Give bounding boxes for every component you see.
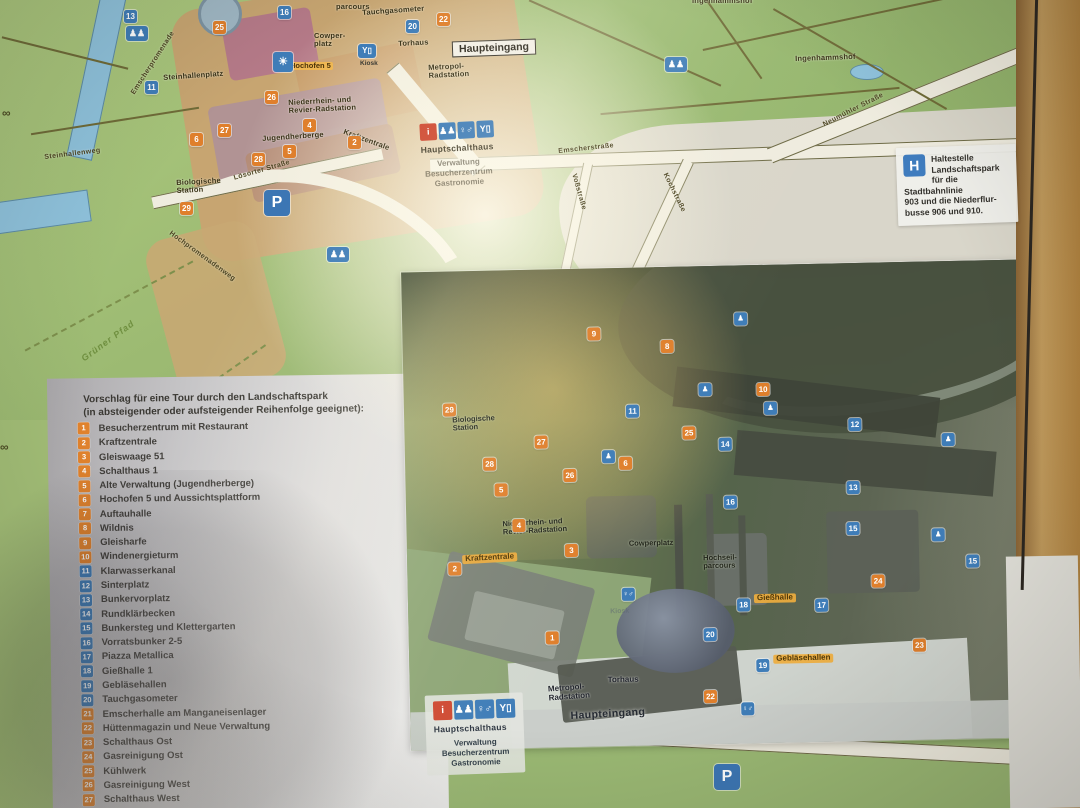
inset-badge-5: 5 (495, 483, 508, 496)
map-label: Kochstraße (661, 172, 686, 214)
inset-badge-1: 1 (546, 631, 559, 644)
inset-badge-13: 13 (847, 481, 860, 494)
inset-badge-11: 11 (626, 405, 639, 418)
inset-badge-16: 16 (724, 496, 737, 509)
figures-icon: ♟ (764, 402, 777, 415)
map-label: Ingenhammshof (795, 53, 856, 63)
map-badge-11: 11 (145, 81, 158, 94)
figures-icon: ♟ (734, 312, 747, 325)
transit-info-box: H HaltestelleLandschaftsparkfür die Stad… (896, 144, 1019, 226)
inset-badge-17: 17 (815, 599, 828, 612)
map-badge-22: 22 (437, 13, 450, 26)
inset-badge-23: 23 (913, 639, 926, 652)
parking-icon: P (714, 764, 740, 790)
bicycle-icon: ∞ (2, 106, 11, 120)
parking-icon: P (264, 190, 290, 216)
main-entrance-label: Haupteingang (452, 39, 537, 58)
inset-badge-19: 19 (756, 659, 769, 672)
viewpoint-icon: ☀ (273, 52, 293, 72)
visitor-facilities-inset: i ♟♟ ♀♂ Y▯ Hauptschalthaus Verwaltung Be… (425, 692, 526, 775)
map-badge-5: 5 (283, 145, 296, 158)
playground-icon: ♟♟ (126, 26, 148, 41)
inset-badge-14: 14 (719, 438, 732, 451)
family-icon: ♟♟ (454, 700, 474, 720)
map-label: Steinhallenplatz (163, 70, 224, 82)
bicycle-icon: ∞ (0, 440, 9, 454)
map-badge-28: 28 (252, 153, 265, 166)
inset-label: Cowperplatz (629, 539, 674, 548)
playground-icon: ♟♟ (327, 247, 349, 262)
family-icon: ♟♟ (438, 122, 456, 140)
inset-badge-27: 27 (535, 435, 548, 448)
wc-icon: ♀♂ (457, 121, 475, 139)
inset-label: Metropol- Radstation (548, 682, 590, 702)
facility-icons: i ♟♟ ♀♂ Y▯ (419, 120, 494, 141)
map-badge-25: 25 (213, 21, 226, 34)
map-label: Grüner Pfad (80, 319, 137, 364)
inset-badge-25: 25 (682, 426, 695, 439)
map-label: Niederrhein- und Revier-Radstation (288, 95, 356, 115)
inset-label: Hochseil- parcours (703, 554, 737, 571)
inset-badge-15: 15 (846, 522, 859, 535)
map-badge-16: 16 (278, 6, 291, 19)
info-icon: i (419, 123, 437, 141)
figures-icon: ♟ (942, 433, 955, 446)
map-label: Jugendherberge (262, 131, 324, 143)
inset-badge-28: 28 (483, 458, 496, 471)
playground-icon: ♟♟ (665, 57, 687, 72)
facility-title: Hauptschalthaus (434, 722, 516, 735)
map-badge-26: 26 (265, 91, 278, 104)
facility-title: Hauptschalthaus (420, 141, 494, 155)
map-label: Emscherstraße (558, 142, 614, 155)
inset-badge-15: 15 (966, 554, 979, 567)
visitor-facilities-main: i ♟♟ ♀♂ Y▯ Hauptschalthaus Verwaltung Be… (419, 120, 496, 190)
wc-icon: ♀♂ (741, 702, 754, 715)
map-label: Biologische Station (176, 177, 222, 196)
inset-badge-8: 8 (661, 340, 674, 353)
inset-label: Haupteingang (570, 707, 645, 722)
inset-label: Torhaus (608, 676, 639, 685)
inset-badge-18: 18 (737, 598, 750, 611)
map-badge-20: 20 (406, 20, 419, 33)
map-badge-2: 2 (348, 136, 361, 149)
map-label: Cowper- platz (314, 32, 345, 48)
inset-badge-9: 9 (587, 327, 600, 340)
park-map-photo: Vorschlag für eine Tour durch den Landsc… (0, 0, 1080, 808)
wc-icon: ♀♂ (475, 699, 495, 719)
figures-icon: ♟ (602, 450, 615, 463)
map-badge-13: 13 (124, 10, 137, 23)
map-label: Ingenhammshof (692, 0, 753, 5)
facility-lines: Verwaltung Besucherzentrum Gastronomie (434, 737, 517, 770)
inset-badge-22: 22 (704, 690, 717, 703)
inset-badge-24: 24 (871, 574, 884, 587)
map-label: Hochofen 5 (288, 62, 333, 70)
inset-label: Gießhalle (754, 593, 796, 603)
inset-badge-6: 6 (619, 457, 632, 470)
inset-badge-29: 29 (443, 403, 456, 416)
map-label: Tauchgasometer (362, 5, 425, 17)
map-label: Kiosk (360, 60, 378, 67)
info-box-line: busse 906 und 910. (905, 204, 1011, 218)
inset-label: Biologische Station (452, 414, 495, 433)
inset-label: Kiosk (610, 608, 629, 616)
inset-label: Kraftzentrale (462, 552, 517, 564)
restaurant-icon: Y▯ (496, 699, 516, 719)
inset-badge-26: 26 (563, 469, 576, 482)
info-icon: i (433, 701, 453, 721)
map-badge-29: 29 (180, 202, 193, 215)
inset-badge-20: 20 (704, 628, 717, 641)
inset-annotations: Biologische StationKraftzentraleNiederrh… (401, 260, 1027, 751)
map-label: Steinhallenweg (44, 147, 101, 161)
inset-badge-10: 10 (756, 383, 769, 396)
restaurant-icon: Y▯ (476, 120, 494, 138)
map-label: Voßstraße (570, 173, 588, 211)
inset-badge-3: 3 (565, 544, 578, 557)
facility-icons: i ♟♟ ♀♂ Y▯ (433, 699, 516, 721)
inset-3d-map: Biologische StationKraftzentraleNiederrh… (401, 260, 1027, 751)
map-badge-27: 27 (218, 124, 231, 137)
wc-icon: ♀♂ (622, 588, 635, 601)
map-badge-6: 6 (190, 133, 203, 146)
inset-label: Gebläsehallen (773, 654, 833, 664)
transit-info-text: HaltestelleLandschaftsparkfür die Stadtb… (903, 151, 1011, 218)
map-label: Torhaus (398, 38, 429, 48)
figures-icon: ♟ (932, 528, 945, 541)
kiosk-icon: Y▯ (358, 44, 376, 58)
inset-badge-4: 4 (512, 519, 525, 532)
inset-badge-2: 2 (448, 562, 461, 575)
figures-icon: ♟ (698, 383, 711, 396)
map-label: Metropol- Radstation (428, 62, 470, 80)
map-label: Neumühler Straße (822, 92, 885, 129)
facility-lines: Verwaltung Besucherzentrum Gastronomie (421, 156, 496, 190)
map-label: Hochpromenadenweg (168, 230, 237, 283)
map-badge-4: 4 (303, 119, 316, 132)
inset-badge-12: 12 (848, 418, 861, 431)
paper-margin (1006, 555, 1080, 808)
